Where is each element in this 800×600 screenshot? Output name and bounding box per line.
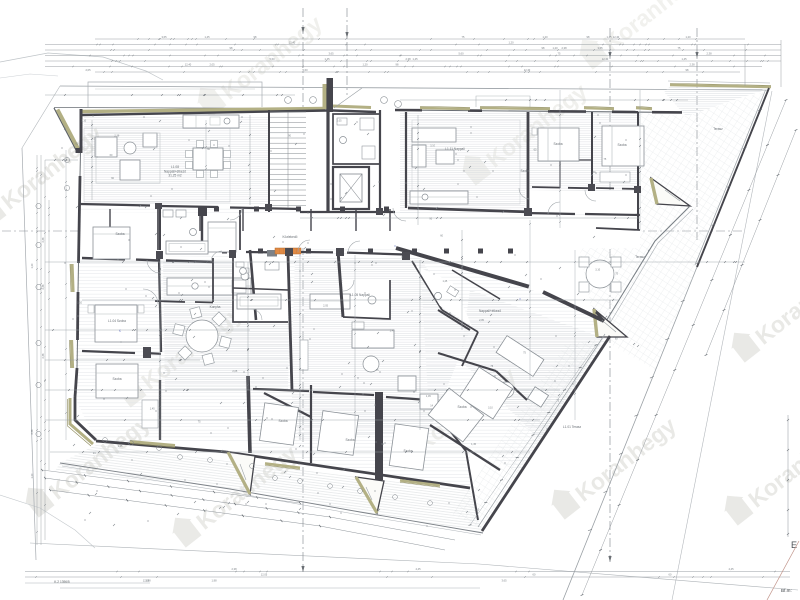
svg-text:2,05: 2,05	[323, 305, 328, 308]
svg-text:2,05: 2,05	[85, 68, 91, 72]
svg-text:2,38: 2,38	[405, 57, 411, 61]
svg-text:1,45: 1,45	[412, 57, 418, 61]
svg-text:12,40: 12,40	[289, 41, 296, 45]
svg-text:12,40: 12,40	[613, 35, 620, 39]
svg-text:1,45: 1,45	[606, 35, 612, 39]
svg-text:2,38: 2,38	[42, 284, 45, 289]
svg-text:12,05: 12,05	[261, 573, 268, 577]
svg-text:3,10: 3,10	[430, 144, 435, 147]
svg-text:1,20: 1,20	[552, 46, 558, 50]
svg-text:3,65: 3,65	[597, 46, 603, 50]
svg-text:2,05: 2,05	[337, 119, 342, 122]
svg-text:Szoba: Szoba	[345, 438, 354, 442]
svg-text:Konyha: Konyha	[210, 305, 221, 309]
svg-text:1,20: 1,20	[508, 41, 514, 45]
svg-text:2,38: 2,38	[689, 63, 695, 67]
svg-text:1,20: 1,20	[542, 35, 548, 39]
svg-text:1,45: 1,45	[118, 445, 123, 448]
svg-text:2,38: 2,38	[114, 135, 119, 138]
svg-text:Szoba: Szoba	[403, 449, 412, 453]
svg-text:1,20: 1,20	[362, 63, 368, 67]
svg-text:2,05: 2,05	[479, 319, 484, 322]
svg-text:31,25 m2: 31,25 m2	[168, 174, 182, 178]
svg-text:Közlekedő: Közlekedő	[283, 235, 298, 239]
svg-text:Bf.m:: Bf.m:	[781, 588, 792, 593]
svg-text:Szoba: Szoba	[553, 142, 562, 146]
svg-text:5,60: 5,60	[458, 52, 464, 56]
svg-text:3,10: 3,10	[595, 269, 600, 272]
svg-text:3,10: 3,10	[488, 406, 493, 409]
svg-text:1,45: 1,45	[426, 395, 431, 398]
svg-text:Terasz: Terasz	[713, 127, 723, 131]
svg-text:L1.11 Nappali: L1.11 Nappali	[445, 147, 465, 151]
svg-text:1,45: 1,45	[324, 57, 330, 61]
svg-text:2,38: 2,38	[706, 52, 712, 56]
svg-text:1,20: 1,20	[31, 473, 34, 478]
svg-text:Szoba: Szoba	[520, 169, 529, 173]
svg-text:L1.04 Szoba: L1.04 Szoba	[108, 319, 126, 323]
svg-text:2,38: 2,38	[42, 237, 45, 242]
svg-text:4,45: 4,45	[415, 567, 421, 571]
svg-text:4,45: 4,45	[728, 567, 734, 571]
svg-text:Szoba: Szoba	[457, 405, 466, 409]
svg-text:2,38: 2,38	[231, 567, 237, 571]
svg-text:1,45: 1,45	[471, 443, 476, 446]
svg-text:3,10: 3,10	[474, 508, 479, 511]
svg-text:1,45: 1,45	[150, 408, 155, 411]
svg-text:2,05: 2,05	[209, 63, 215, 67]
svg-text:L1.08: L1.08	[171, 165, 179, 169]
svg-text:2,38: 2,38	[42, 353, 45, 358]
svg-text:1,45: 1,45	[681, 57, 687, 61]
svg-text:2,38: 2,38	[561, 46, 567, 50]
svg-text:3,65: 3,65	[501, 579, 507, 583]
svg-text:Szoba: Szoba	[112, 377, 121, 381]
svg-text:Terasz: Terasz	[635, 255, 645, 259]
svg-text:3,65: 3,65	[161, 35, 167, 39]
svg-text:12,40: 12,40	[602, 57, 609, 61]
svg-text:2,38: 2,38	[31, 429, 34, 434]
svg-text:1,20: 1,20	[685, 35, 691, 39]
svg-text:1,98: 1,98	[211, 579, 217, 583]
svg-text:K.2 1396/5: K.2 1396/5	[54, 580, 70, 584]
svg-text:3,10: 3,10	[81, 119, 86, 122]
svg-text:x: x	[394, 244, 396, 248]
svg-text:E: E	[791, 540, 797, 550]
svg-text:12,05: 12,05	[143, 579, 150, 583]
svg-text:1,45: 1,45	[204, 35, 210, 39]
svg-text:3,65: 3,65	[328, 52, 334, 56]
svg-text:3,10: 3,10	[77, 302, 82, 305]
svg-text:Nappali+étkező: Nappali+étkező	[479, 309, 501, 313]
svg-text:L1.01 Terasz: L1.01 Terasz	[563, 425, 582, 429]
svg-text:L1.05 Nappali: L1.05 Nappali	[350, 293, 370, 297]
svg-text:Szoba: Szoba	[617, 143, 626, 147]
svg-text:12,40: 12,40	[524, 68, 531, 72]
svg-text:1,45: 1,45	[390, 330, 395, 333]
svg-text:Szoba: Szoba	[278, 419, 287, 423]
svg-text:2,05: 2,05	[232, 370, 237, 373]
svg-text:1,45: 1,45	[442, 280, 447, 283]
svg-text:12,40: 12,40	[185, 63, 192, 67]
svg-text:1,20: 1,20	[31, 263, 34, 268]
svg-text:5,60: 5,60	[269, 57, 275, 61]
svg-text:Szoba: Szoba	[115, 232, 124, 236]
